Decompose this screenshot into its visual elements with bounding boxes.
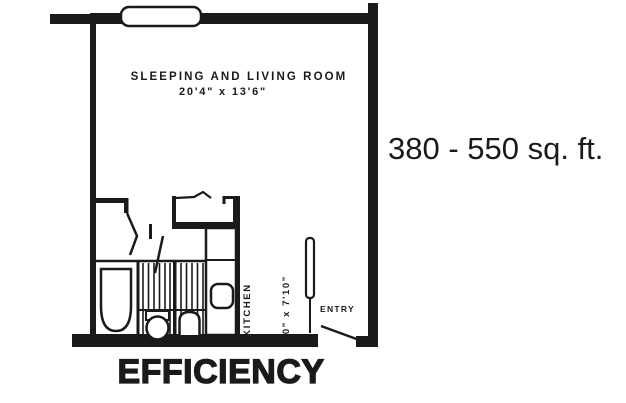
entry-label: ENTRY: [320, 304, 355, 314]
kitchen-name: KITCHEN: [241, 267, 254, 353]
wall-top-left-stub: [50, 14, 95, 24]
floor-plan-page: SLEEPING AND LIVING ROOM 20'4" x 13'6" K…: [0, 0, 626, 403]
plan-title: EFFICIENCY: [75, 353, 367, 392]
kitchen-label: KITCHEN 8'0" x 7'10": [215, 267, 319, 353]
bathroom-walls: [93, 198, 129, 213]
bathroom-wall: [93, 198, 128, 203]
kitchen-dimensions: 8'0" x 7'10": [280, 267, 293, 353]
wall-entry-block: [356, 336, 374, 347]
window-icon: [121, 7, 201, 26]
main-room-label: SLEEPING AND LIVING ROOM: [128, 71, 350, 83]
bathroom-door-jamb: [124, 198, 129, 213]
bathroom-door-swing-icon: [127, 213, 137, 255]
toilet-icon: [146, 311, 169, 340]
closet-door-jamb: [149, 224, 152, 239]
bathroom-sink-icon: [180, 312, 200, 335]
door-swing-icon: [321, 326, 362, 341]
main-room-dimensions: 20'4" x 13'6": [138, 86, 308, 98]
bathtub-icon: [101, 269, 131, 331]
closet-bifold-door-icon: [176, 192, 211, 198]
area-range-label: 380 - 550 sq. ft.: [388, 131, 603, 167]
wall-right: [368, 3, 378, 347]
wall-left: [90, 23, 96, 337]
bathroom-partition: [173, 261, 177, 336]
